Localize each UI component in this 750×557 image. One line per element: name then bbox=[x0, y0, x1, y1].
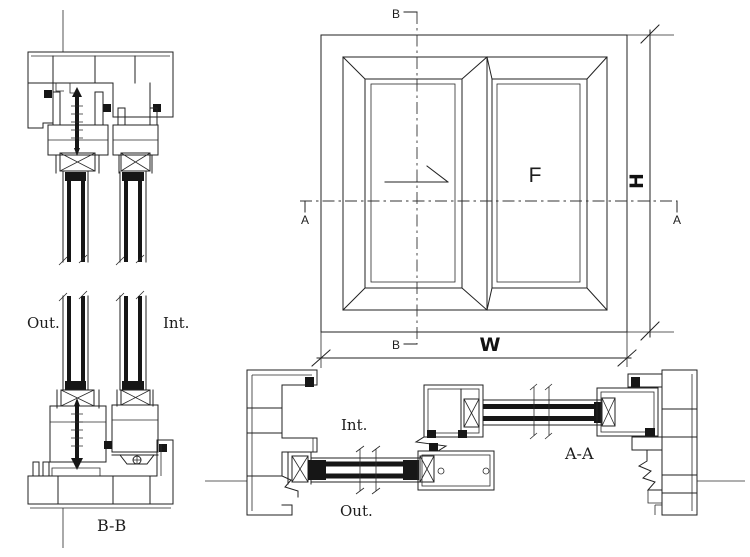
aa-caption: A-A bbox=[564, 444, 594, 463]
section-letter-a-left: A bbox=[301, 213, 309, 227]
elevation-view: F B B A A H W bbox=[300, 7, 681, 368]
aa-lower-glazing bbox=[308, 446, 419, 494]
window-technical-drawing: Out. Int. B-B F B B A A H bbox=[0, 0, 750, 557]
aa-left-jamb bbox=[205, 370, 317, 515]
aa-lower-glass-break bbox=[356, 446, 380, 494]
elevation-outer-frame bbox=[321, 35, 627, 332]
bb-inner-sash-bottom bbox=[104, 390, 167, 465]
width-dim-label: W bbox=[480, 334, 501, 356]
aa-right-sash-stile bbox=[597, 388, 658, 436]
section-letter-b-top: B bbox=[392, 7, 400, 21]
section-letter-b-bottom: B bbox=[392, 338, 400, 352]
aa-upper-glazing bbox=[483, 384, 602, 439]
slide-direction-arrow bbox=[385, 166, 448, 182]
fixed-panel-label: F bbox=[529, 164, 542, 187]
section-aa-view: Int. Out. A-A bbox=[205, 370, 745, 520]
bb-caption: B-B bbox=[97, 516, 126, 535]
height-dimension: H bbox=[626, 25, 674, 340]
bb-outer-glazing bbox=[59, 172, 88, 390]
section-bb-view: Out. Int. B-B bbox=[27, 10, 189, 548]
drawing-stage: Out. Int. B-B F B B A A H bbox=[0, 0, 750, 557]
bb-int-label: Int. bbox=[163, 314, 189, 332]
section-letter-a-right: A bbox=[673, 213, 681, 227]
aa-int-label: Int. bbox=[341, 416, 367, 434]
aa-upper-glass-break bbox=[530, 384, 552, 439]
bb-inner-glazing bbox=[116, 172, 146, 390]
height-dim-label: H bbox=[626, 173, 648, 189]
aa-interlock bbox=[416, 385, 494, 490]
elevation-left-sash bbox=[365, 79, 462, 288]
aa-out-label: Out. bbox=[340, 502, 373, 520]
bb-out-label: Out. bbox=[27, 314, 60, 332]
bb-inner-sash-top bbox=[103, 104, 161, 173]
width-dimension: W bbox=[312, 332, 636, 368]
bb-bottom-screw bbox=[71, 398, 83, 470]
elevation-miter-lines bbox=[343, 57, 607, 310]
elevation-sash-group bbox=[343, 57, 607, 310]
bb-top-screw bbox=[71, 87, 83, 156]
